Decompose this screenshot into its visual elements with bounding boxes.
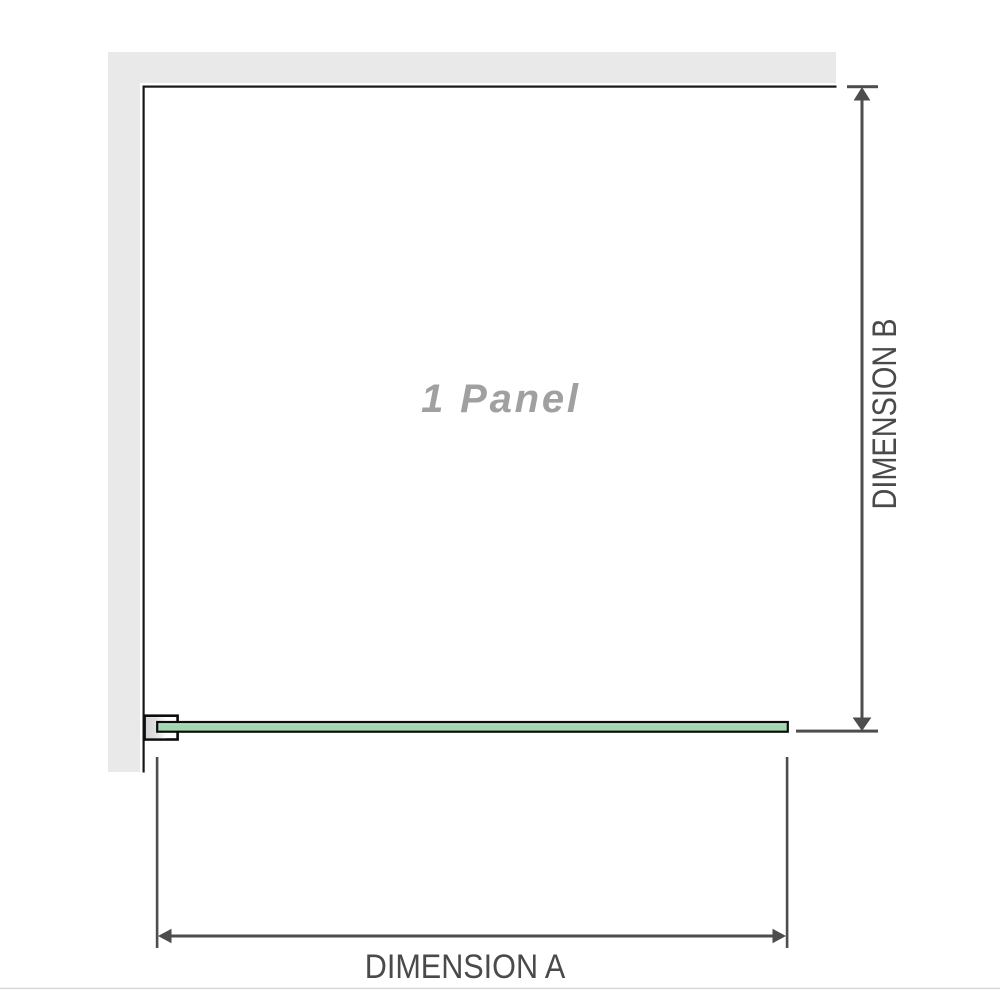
- svg-text:1 Panel: 1 Panel: [421, 377, 581, 421]
- svg-text:DIMENSION A: DIMENSION A: [365, 948, 566, 986]
- svg-text:DIMENSION B: DIMENSION B: [865, 318, 904, 509]
